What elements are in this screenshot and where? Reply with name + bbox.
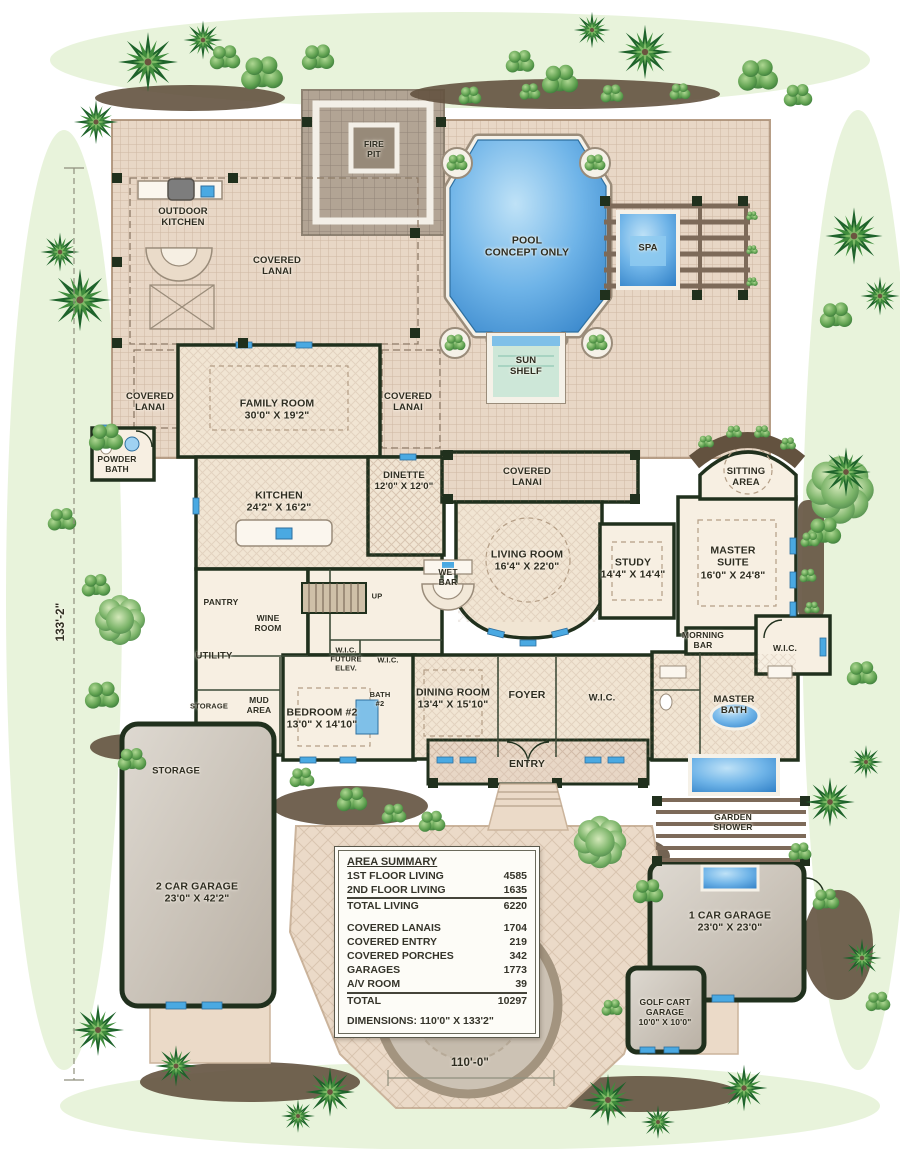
summary-row: GARAGES1773 <box>347 963 527 977</box>
stairs <box>302 583 366 613</box>
golf-cart-garage <box>628 968 704 1052</box>
sink <box>201 186 214 197</box>
floor-plan-page: FIRE PIT OUTDOOR KITCHEN COVERED LANAI P… <box>0 0 900 1149</box>
master-tub <box>711 703 759 729</box>
powder-sink <box>125 437 139 451</box>
bedroom-2 <box>283 655 415 760</box>
area-summary-box: AREA SUMMARY 1ST FLOOR LIVING4585 2ND FL… <box>334 846 540 1038</box>
study <box>600 524 674 618</box>
entry-walk <box>488 784 568 830</box>
summary-row: TOTAL10297 <box>347 994 527 1008</box>
summary-row: 1ST FLOOR LIVING4585 <box>347 869 527 883</box>
toilet <box>660 694 672 710</box>
summary-row: 2ND FLOOR LIVING1635 <box>347 883 527 899</box>
bath2-tub <box>356 700 378 734</box>
summary-dimensions: DIMENSIONS: 110'0" X 133'2" <box>347 1015 527 1027</box>
island-sink <box>276 528 292 539</box>
lanai-tile <box>442 452 638 502</box>
area-summary-title: AREA SUMMARY <box>347 856 527 868</box>
summary-row: TOTAL LIVING6220 <box>347 899 527 913</box>
grill <box>168 179 194 200</box>
summary-row: COVERED ENTRY219 <box>347 935 527 949</box>
summary-row: COVERED LANAIS1704 <box>347 921 527 935</box>
summary-row: COVERED PORCHES342 <box>347 949 527 963</box>
sitting-area-bay <box>700 452 796 499</box>
summary-row: A/V ROOM39 <box>347 977 527 993</box>
fire-pit <box>351 125 397 171</box>
